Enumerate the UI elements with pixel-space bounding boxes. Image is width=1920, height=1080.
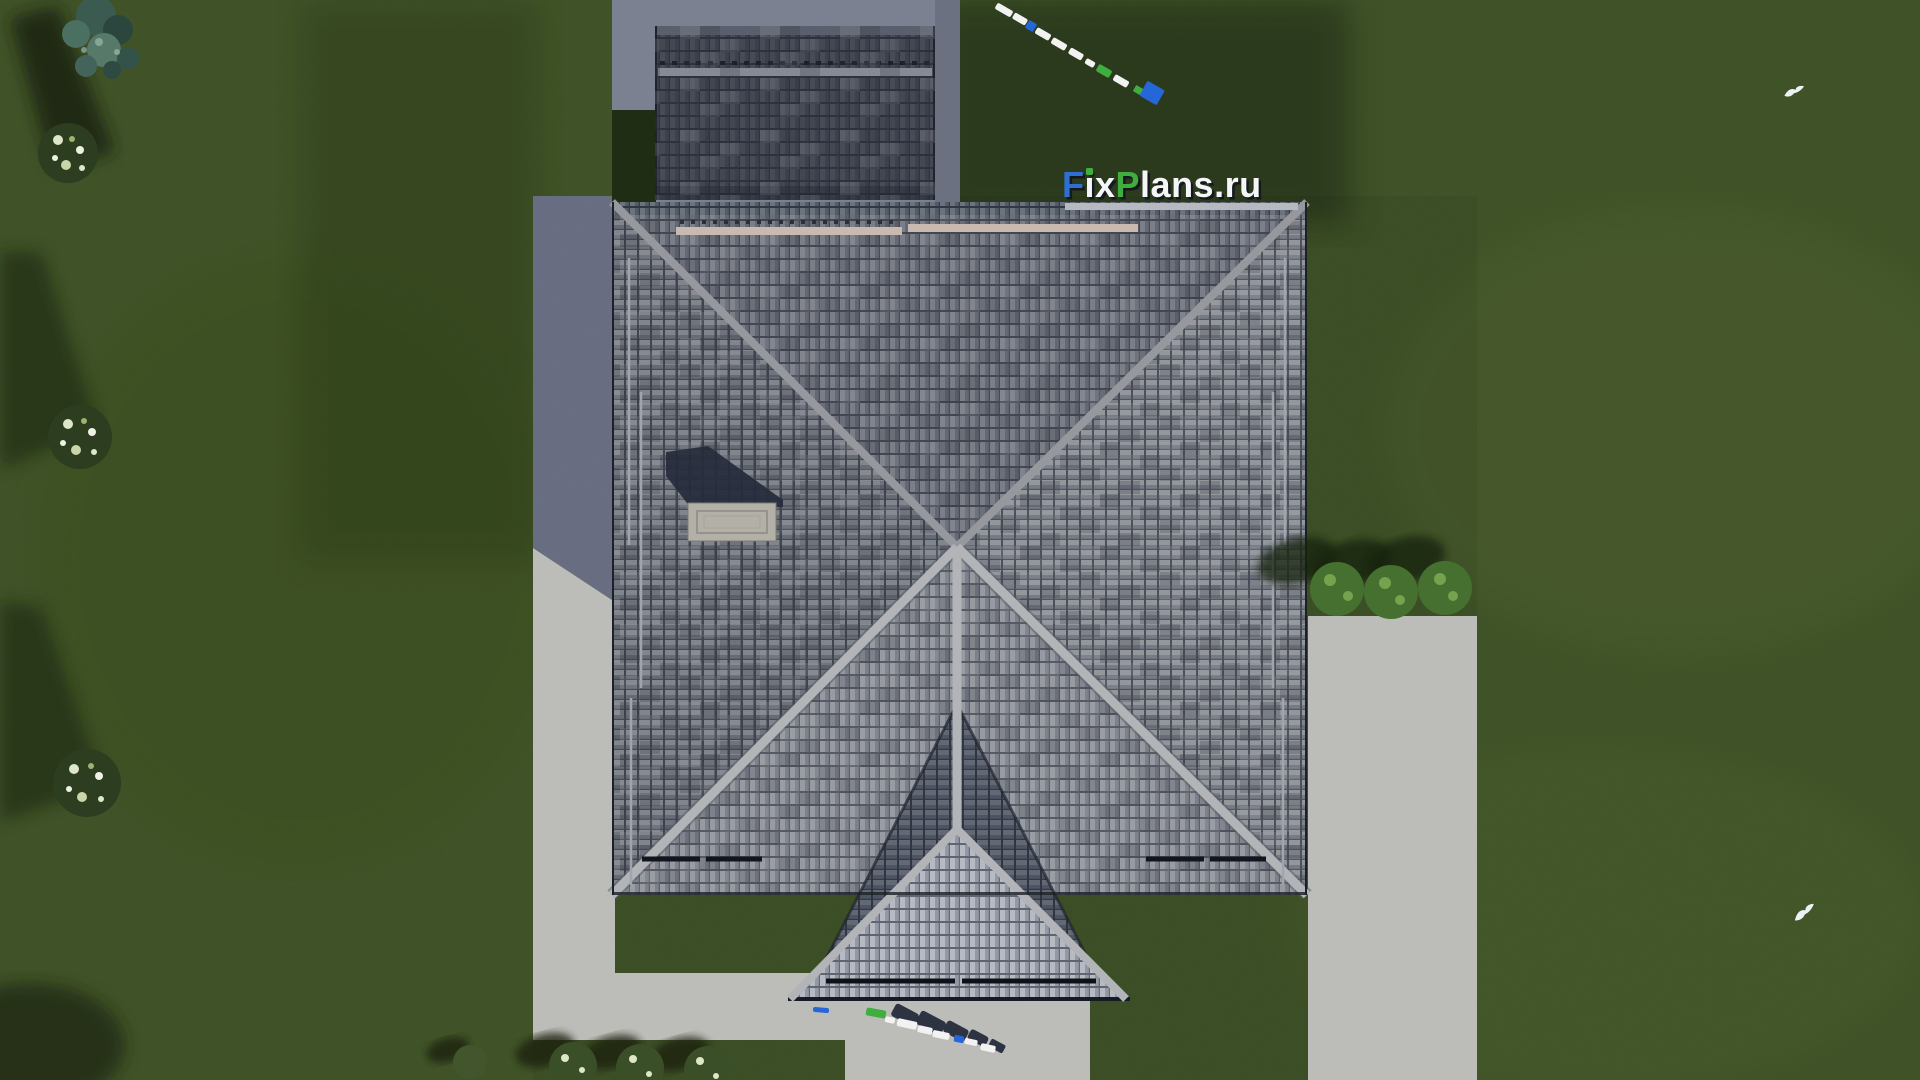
watermark-part-lans: lans (1140, 164, 1214, 205)
canopy (103, 61, 121, 79)
canopy (75, 55, 97, 77)
flower-bush (38, 123, 98, 183)
render-canvas: FixPlans.ru FixPlans.ru (0, 0, 1920, 1080)
bush (1364, 565, 1418, 619)
bush-speckle (98, 796, 104, 802)
bush-speckle (60, 440, 66, 446)
bush-speckle (646, 1071, 652, 1077)
bush-highlight (1324, 574, 1336, 586)
aerial-house-render: FixPlans.ru FixPlans.ru (0, 0, 1920, 1080)
bush-speckle (88, 763, 94, 769)
watermark-i-dot (1086, 168, 1093, 175)
bush-speckle (66, 786, 72, 792)
canopy-highlight (81, 47, 87, 53)
bush-speckle (69, 136, 75, 142)
bush-speckle (91, 449, 97, 455)
canopy-highlight (95, 38, 103, 46)
bush-speckle (77, 792, 87, 802)
watermark-part-f: F (1062, 164, 1085, 205)
bush-speckle (52, 155, 58, 161)
canopy (117, 47, 139, 69)
flower-bush (48, 405, 112, 469)
hedge-strip (612, 110, 656, 206)
bush (1310, 562, 1364, 616)
bush-speckle (79, 165, 85, 171)
bush (1418, 561, 1472, 615)
watermark-part-ru: .ru (1214, 164, 1262, 205)
bush (453, 1045, 487, 1079)
bush-base (48, 405, 112, 469)
bush-speckle (579, 1067, 585, 1073)
bush-base (38, 123, 98, 183)
bush-speckle (81, 418, 87, 424)
bush-speckle (696, 1057, 704, 1065)
flower-bush (53, 749, 121, 817)
bush-speckle (53, 135, 63, 145)
watermark-part-p: P (1116, 164, 1141, 205)
bush-speckle (713, 1073, 719, 1079)
bush-speckle (61, 160, 71, 170)
bush-highlight (1395, 595, 1405, 605)
bush-speckle (629, 1055, 637, 1063)
chimney-cap (688, 503, 776, 541)
snowguard-bar (676, 227, 902, 235)
garage-pad-edge (935, 0, 960, 206)
canopy-highlight (114, 49, 120, 55)
bush-highlight (1379, 577, 1391, 589)
bush-highlight (1434, 573, 1446, 585)
bush-speckle (69, 764, 79, 774)
eave-edge-left (612, 202, 614, 895)
bush-speckle (561, 1054, 569, 1062)
bush-highlight (1343, 591, 1353, 601)
canopy (62, 20, 90, 48)
eave-edge-bottom (612, 892, 1307, 895)
bush-speckle (76, 146, 84, 154)
watermark: FixPlans.ru FixPlans.ru (1062, 164, 1264, 208)
snowguard-bar (908, 224, 1138, 232)
bush-speckle (95, 772, 103, 780)
bush-speckle (71, 445, 81, 455)
bush-speckle (88, 428, 96, 436)
bush-highlight (1448, 591, 1458, 601)
bush-base (53, 749, 121, 817)
bush-speckle (63, 419, 73, 429)
